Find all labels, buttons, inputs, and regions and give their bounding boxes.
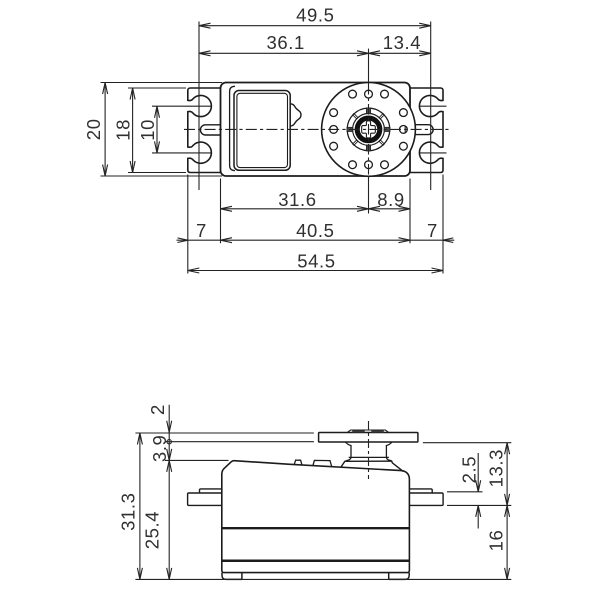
svg-text:25.4: 25.4 <box>142 511 163 549</box>
svg-text:31.6: 31.6 <box>278 189 316 210</box>
svg-text:40.5: 40.5 <box>296 220 334 241</box>
svg-text:49.5: 49.5 <box>296 5 334 26</box>
svg-text:54.5: 54.5 <box>297 250 335 271</box>
svg-text:13.4: 13.4 <box>383 32 421 53</box>
svg-text:13.3: 13.3 <box>486 449 507 487</box>
svg-text:7: 7 <box>196 220 207 241</box>
svg-text:8.9: 8.9 <box>377 189 405 210</box>
svg-text:31.3: 31.3 <box>118 492 139 530</box>
svg-text:16: 16 <box>486 530 507 552</box>
svg-text:7: 7 <box>427 220 438 241</box>
svg-text:20: 20 <box>83 118 104 140</box>
svg-text:36.1: 36.1 <box>266 32 304 53</box>
svg-text:3.9: 3.9 <box>149 435 170 463</box>
svg-text:2.5: 2.5 <box>459 456 480 484</box>
svg-text:2: 2 <box>147 404 168 415</box>
svg-text:18: 18 <box>113 119 134 141</box>
svg-text:10: 10 <box>137 119 158 141</box>
